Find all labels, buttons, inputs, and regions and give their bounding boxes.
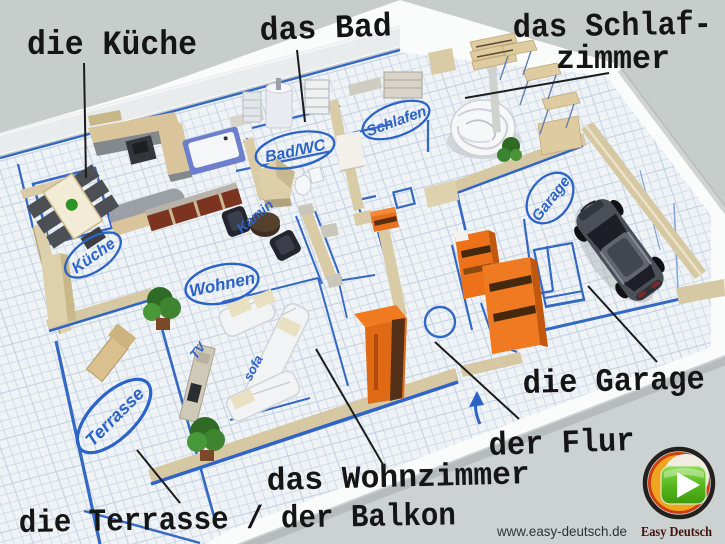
svg-text:das Bad: das Bad xyxy=(259,8,392,50)
svg-text:www.easy-deutsch.de: www.easy-deutsch.de xyxy=(496,523,627,539)
svg-text:Easy Deutsch: Easy Deutsch xyxy=(641,524,712,539)
svg-text:die Terrasse / der Balkon: die Terrasse / der Balkon xyxy=(19,497,457,542)
svg-text:zimmer: zimmer xyxy=(556,41,670,78)
svg-text:die Garage: die Garage xyxy=(522,361,705,403)
svg-text:das Wohnzimmer: das Wohnzimmer xyxy=(266,456,530,500)
svg-text:die Küche: die Küche xyxy=(27,27,197,65)
